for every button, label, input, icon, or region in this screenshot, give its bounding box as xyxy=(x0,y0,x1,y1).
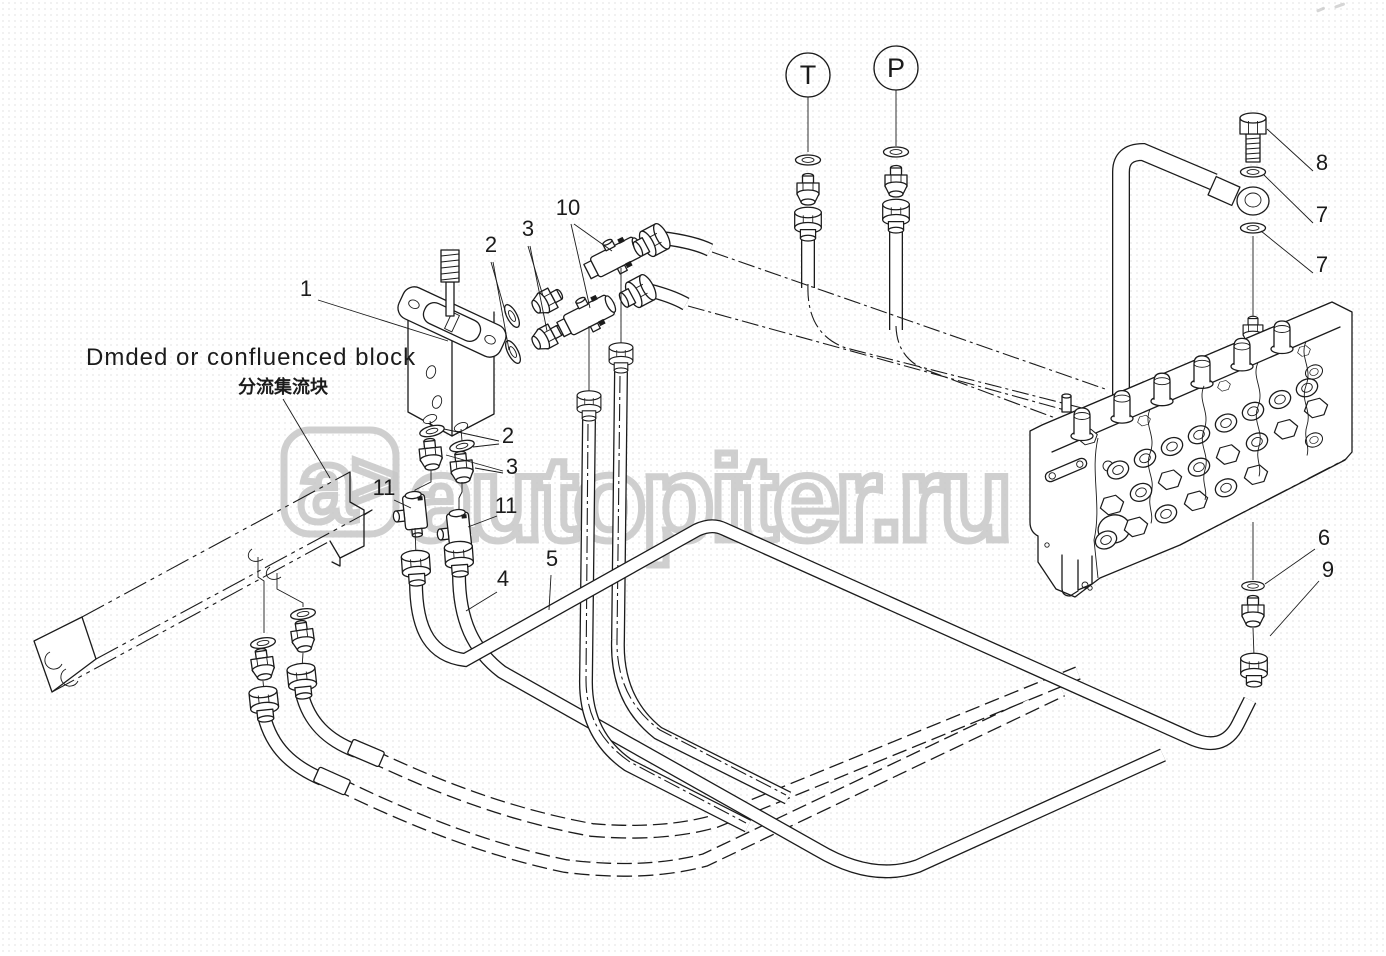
callout-6: 6 xyxy=(1318,525,1330,550)
hose-sleeve xyxy=(347,739,385,767)
manifold-block xyxy=(1030,302,1352,597)
callout-1: 1 xyxy=(300,276,312,301)
callout-2: 2 xyxy=(485,232,497,257)
callout-2: 2 xyxy=(502,423,514,448)
fitting xyxy=(885,166,907,198)
washer-7 xyxy=(1241,167,1266,177)
watermark-logo-a: a xyxy=(298,428,357,544)
hose-sleeve xyxy=(313,767,351,795)
port-t-stack: T xyxy=(786,53,830,241)
fitting-9 xyxy=(1242,596,1264,628)
callout-leader-3 xyxy=(530,246,547,331)
callout-9: 9 xyxy=(1322,557,1334,582)
callout-4: 4 xyxy=(497,566,509,591)
callout-7: 7 xyxy=(1316,252,1328,277)
divider-block xyxy=(394,250,510,436)
block-title-en: Dmded or confluenced block xyxy=(86,344,416,371)
parts-diagram: a > autopiter.ru xyxy=(0,0,1386,956)
callout-leader-9 xyxy=(1270,581,1319,636)
hose-nut xyxy=(609,343,633,373)
port-t-label: T xyxy=(800,60,817,90)
callout-5: 5 xyxy=(546,546,558,571)
callout-8: 8 xyxy=(1316,150,1328,175)
hose-nut xyxy=(883,199,910,233)
callout-leader-7 xyxy=(1261,231,1313,273)
fitting-3 xyxy=(528,284,566,318)
washer xyxy=(290,607,316,621)
manifold-cap xyxy=(1191,356,1213,389)
manifold-cap xyxy=(1151,373,1173,406)
fitting xyxy=(250,647,276,681)
manifold-cap xyxy=(1071,408,1093,441)
hose-nut xyxy=(577,391,601,421)
washer-2 xyxy=(503,339,524,366)
hose-nut xyxy=(286,662,318,700)
fitting xyxy=(797,174,819,206)
block-side-fittings xyxy=(502,221,674,421)
port-p-label: P xyxy=(887,53,905,83)
washer xyxy=(884,147,909,157)
manifold-cap xyxy=(1271,321,1293,354)
callout-leader-8 xyxy=(1267,129,1313,171)
fitting xyxy=(290,619,316,653)
port-p-stack: P xyxy=(874,46,918,233)
callout-11: 11 xyxy=(495,493,518,518)
callout-leader-6 xyxy=(1265,549,1315,584)
callout-3: 3 xyxy=(522,216,534,241)
callout-3: 3 xyxy=(506,454,518,479)
callout-11: 11 xyxy=(373,475,396,500)
callout-7: 7 xyxy=(1316,202,1328,227)
washer-6 xyxy=(1242,582,1265,591)
hose-nut xyxy=(795,207,822,241)
callout-leader-10 xyxy=(574,224,612,251)
callout-leader-4 xyxy=(466,592,497,611)
hose-nut xyxy=(401,550,431,587)
manifold-cap xyxy=(1111,391,1133,424)
corner-watermark xyxy=(1316,2,1345,13)
hose-nut xyxy=(248,685,280,723)
hose-nut xyxy=(444,541,474,578)
callout-leader-2 xyxy=(491,262,506,314)
block-title-zh: 分流集流块 xyxy=(238,376,329,397)
callout-10: 10 xyxy=(556,195,580,220)
washer xyxy=(796,155,821,165)
callout-leader-7 xyxy=(1264,175,1313,223)
manifold-cap xyxy=(1231,338,1253,371)
callout-leader-3 xyxy=(528,246,543,296)
hose-nut xyxy=(1241,653,1268,687)
bolt-8 xyxy=(1240,113,1266,162)
diagram-canvas: a > autopiter.ru xyxy=(0,0,1386,956)
manifold-bottom-fitting xyxy=(1241,522,1268,687)
